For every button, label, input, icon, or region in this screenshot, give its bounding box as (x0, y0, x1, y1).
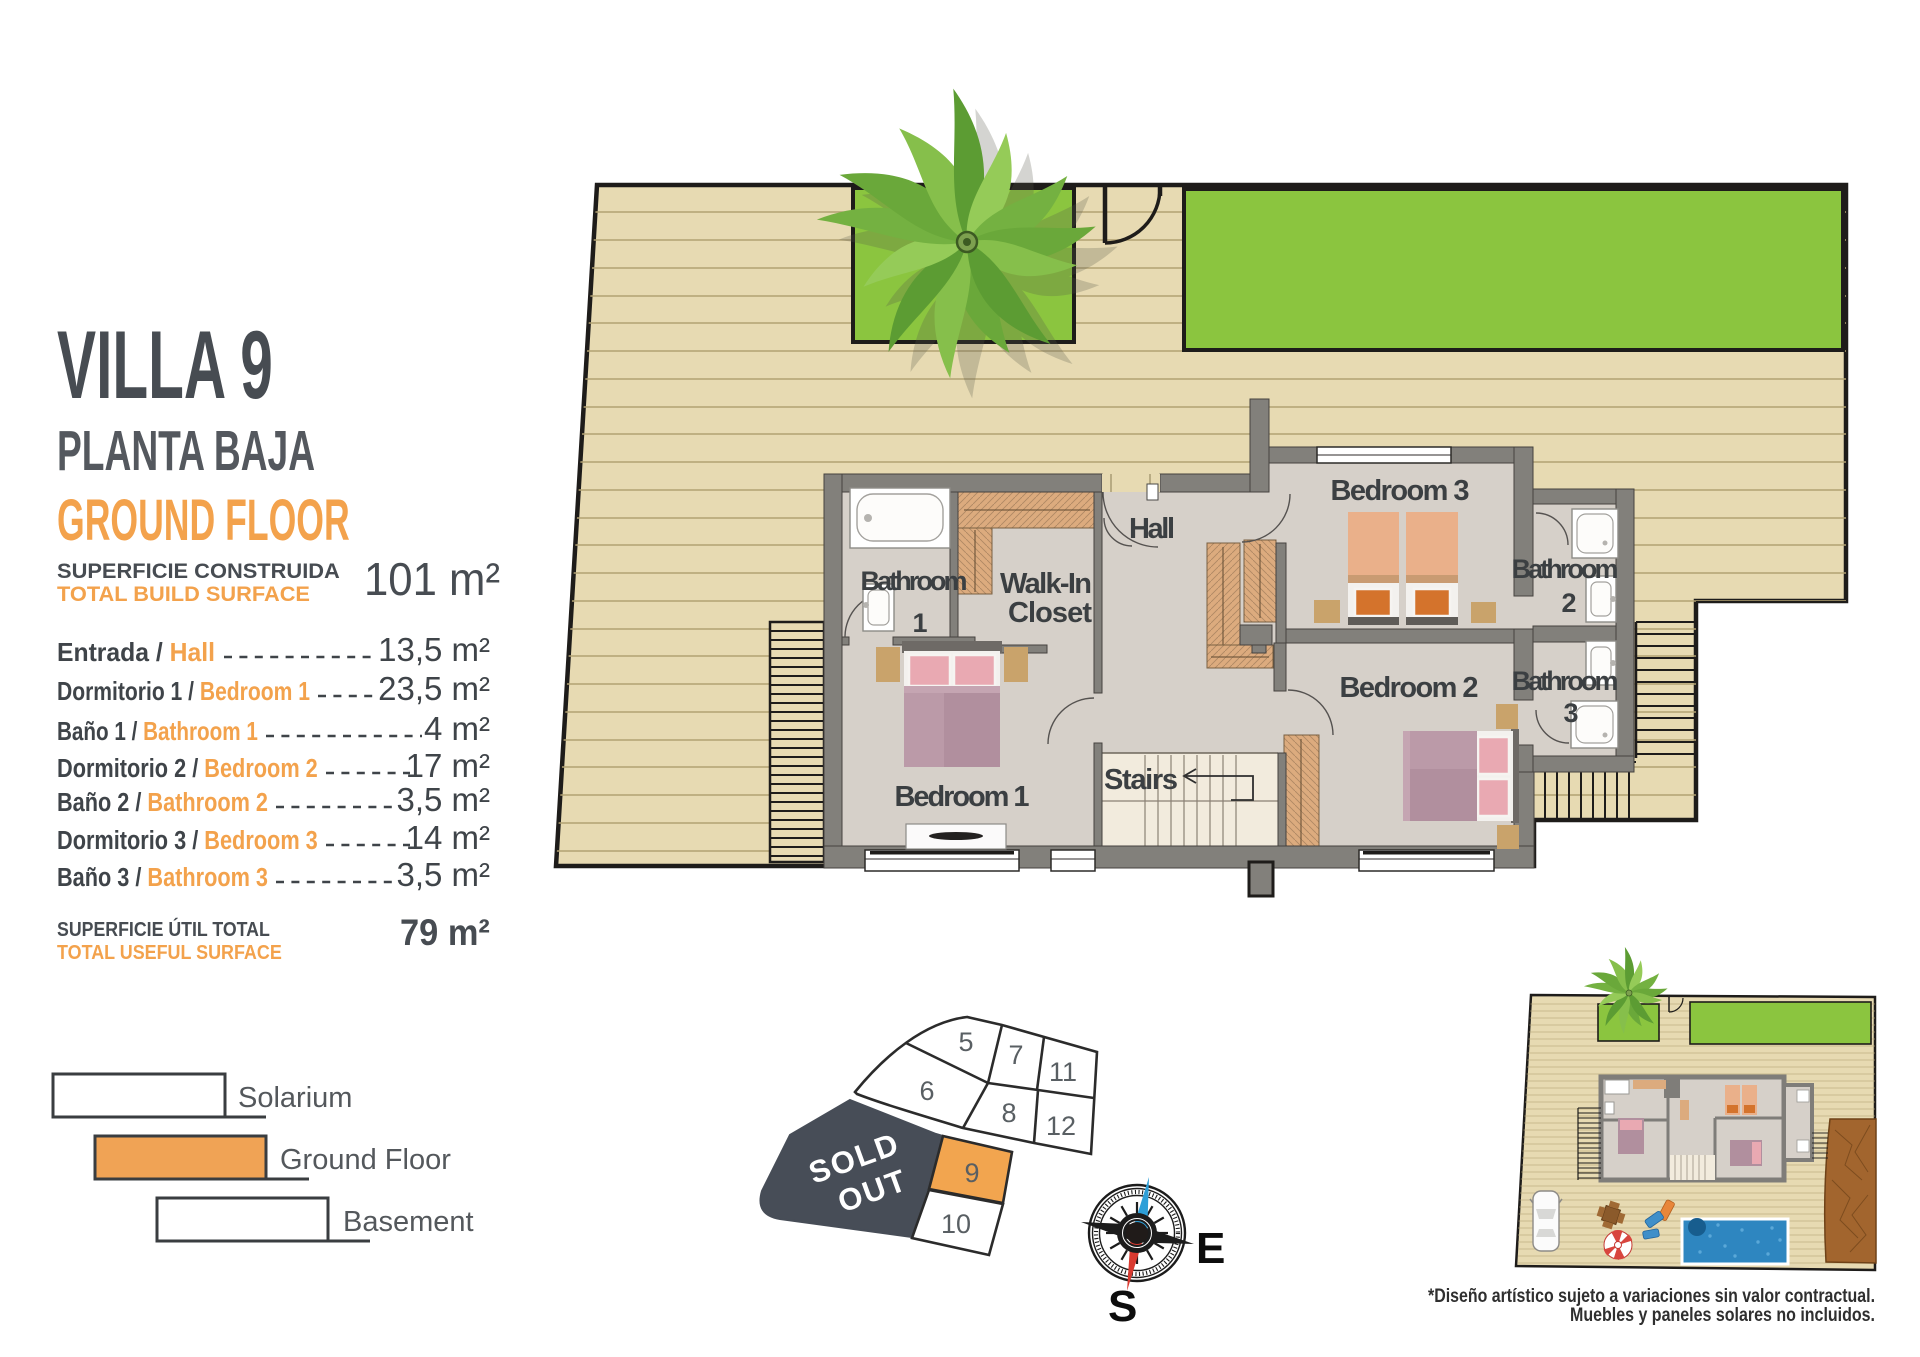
svg-text:Dormitorio 3 / Bedroom 3: Dormitorio 3 / Bedroom 3 (57, 826, 318, 855)
svg-text:23,5 m²: 23,5 m² (378, 670, 490, 707)
svg-text:Ground Floor: Ground Floor (280, 1144, 451, 1176)
svg-text:Bedroom 1: Bedroom 1 (895, 781, 1030, 813)
svg-text:Muebles y paneles solares no i: Muebles y paneles solares no incluidos. (1570, 1305, 1875, 1326)
svg-text:SUPERFICIE CONSTRUIDA: SUPERFICIE CONSTRUIDA (57, 559, 340, 583)
svg-text:3: 3 (1563, 698, 1578, 728)
svg-text:9: 9 (964, 1158, 979, 1188)
svg-text:10: 10 (941, 1209, 971, 1239)
svg-text:3,5 m²: 3,5 m² (396, 856, 490, 893)
svg-text:Bedroom 2: Bedroom 2 (1340, 672, 1479, 704)
svg-text:17 m²: 17 m² (406, 747, 490, 784)
svg-text:14 m²: 14 m² (406, 819, 490, 856)
svg-text:1: 1 (912, 608, 927, 638)
svg-text:8: 8 (1001, 1098, 1016, 1128)
svg-text:Hall: Hall (1129, 513, 1175, 545)
svg-text:13,5 m²: 13,5 m² (378, 631, 490, 668)
svg-text:SUPERFICIE ÚTIL TOTAL: SUPERFICIE ÚTIL TOTAL (57, 918, 270, 941)
svg-text:S: S (1108, 1282, 1137, 1331)
svg-text:11: 11 (1049, 1057, 1077, 1087)
svg-text:Solarium: Solarium (238, 1082, 352, 1114)
svg-text:PLANTA BAJA: PLANTA BAJA (57, 419, 315, 483)
svg-text:Dormitorio 1 / Bedroom 1: Dormitorio 1 / Bedroom 1 (57, 678, 310, 707)
svg-text:Stairs: Stairs (1104, 764, 1178, 796)
svg-text:Bathroom: Bathroom (861, 566, 968, 596)
svg-text:101 m²: 101 m² (364, 553, 500, 605)
svg-text:E: E (1196, 1224, 1225, 1273)
svg-text:5: 5 (958, 1027, 973, 1057)
svg-text:TOTAL USEFUL SURFACE: TOTAL USEFUL SURFACE (57, 942, 282, 964)
svg-text:4 m²: 4 m² (424, 710, 490, 747)
svg-text:2: 2 (1561, 588, 1576, 618)
svg-text:12: 12 (1046, 1111, 1076, 1141)
svg-text:Dormitorio 2 / Bedroom 2: Dormitorio 2 / Bedroom 2 (57, 754, 318, 783)
svg-text:7: 7 (1008, 1040, 1023, 1070)
svg-text:Closet: Closet (1008, 597, 1092, 629)
svg-text:Bathroom: Bathroom (1512, 666, 1619, 696)
svg-text:Baño 1 / Bathroom 1: Baño 1 / Bathroom 1 (57, 717, 258, 746)
svg-text:Walk-In: Walk-In (1000, 568, 1092, 600)
svg-text:Baño 3 / Bathroom 3: Baño 3 / Bathroom 3 (57, 863, 268, 892)
svg-text:*Diseño artístico sujeto a var: *Diseño artístico sujeto a variaciones s… (1428, 1286, 1875, 1307)
svg-text:Bedroom 3: Bedroom 3 (1331, 475, 1470, 507)
svg-text:VILLA 9: VILLA 9 (57, 310, 273, 419)
svg-text:79 m²: 79 m² (400, 912, 490, 953)
svg-text:6: 6 (919, 1076, 934, 1106)
svg-text:3,5 m²: 3,5 m² (396, 781, 490, 818)
svg-text:Baño 2 / Bathroom 2: Baño 2 / Bathroom 2 (57, 788, 268, 817)
svg-text:Bathroom: Bathroom (1512, 554, 1619, 584)
svg-text:Basement: Basement (343, 1206, 474, 1238)
svg-text:TOTAL BUILD SURFACE: TOTAL BUILD SURFACE (57, 582, 310, 606)
svg-text:Entrada / Hall: Entrada / Hall (57, 638, 215, 667)
svg-text:GROUND FLOOR: GROUND FLOOR (57, 488, 350, 553)
